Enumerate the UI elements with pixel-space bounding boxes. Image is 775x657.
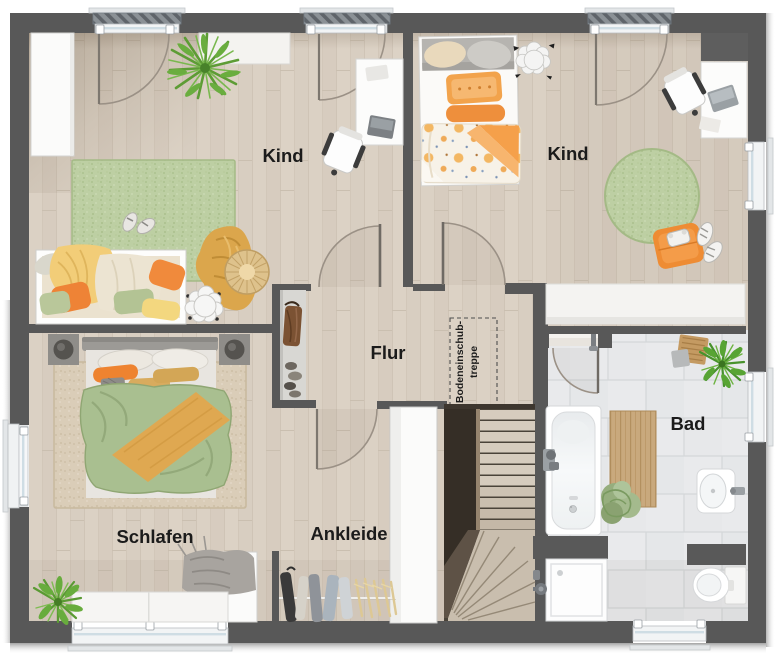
svg-text:Ankleide: Ankleide (310, 523, 387, 544)
svg-text:Kind: Kind (262, 145, 303, 166)
svg-text:Bad: Bad (671, 413, 706, 434)
svg-text:Kind: Kind (547, 143, 588, 164)
svg-text:Bodeneinschub-: Bodeneinschub- (454, 320, 466, 403)
svg-text:Schlafen: Schlafen (116, 526, 193, 547)
svg-text:Flur: Flur (371, 342, 406, 363)
svg-text:treppe: treppe (468, 346, 480, 378)
